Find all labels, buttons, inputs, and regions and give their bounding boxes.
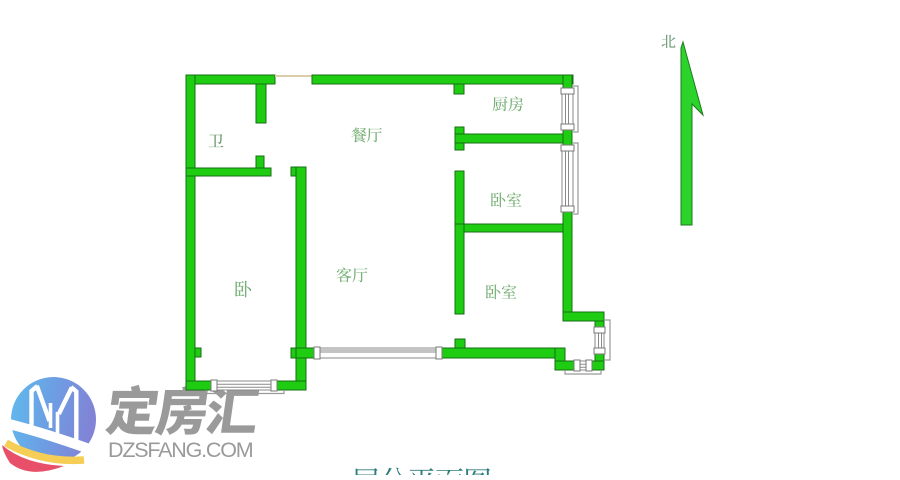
- svg-text:DZSFANG.COM: DZSFANG.COM: [108, 438, 253, 462]
